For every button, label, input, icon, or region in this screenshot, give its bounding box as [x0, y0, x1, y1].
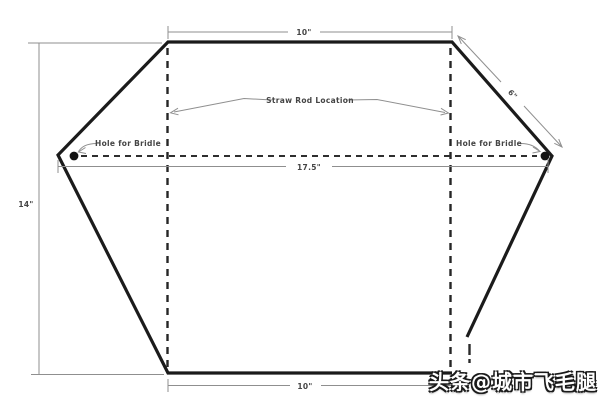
hole-for-bridle-left-label: Hole for Bridle — [95, 139, 161, 148]
hole-for-bridle-right-annotation: Hole for Bridle — [456, 139, 540, 153]
middle-width-label: 17.5" — [297, 163, 321, 172]
kite-outline — [58, 42, 552, 373]
edge-length-label: 6" — [506, 88, 519, 101]
top-width-label: 10" — [296, 28, 311, 37]
diagram-svg: 10" 6" 17.5" 14" — [0, 0, 600, 400]
straw-rod-label: Straw Rod Location — [266, 96, 354, 105]
bridle-hole-right-dot — [541, 152, 550, 161]
middle-width-dimension: 17.5" — [58, 160, 548, 173]
bottom-width-dimension: 10" — [168, 379, 452, 392]
straw-rod-annotation: Straw Rod Location — [171, 96, 449, 115]
hole-for-bridle-right-label: Hole for Bridle — [456, 139, 522, 148]
bridle-hole-left-dot — [70, 152, 79, 161]
watermark-text: 头条@城市飞毛腿 — [429, 366, 597, 395]
kite-plan-diagram: 10" 6" 17.5" 14" — [0, 0, 600, 400]
edge-dimension: 6" — [458, 36, 562, 147]
top-width-dimension: 10" — [168, 26, 452, 39]
bottom-width-label: 10" — [297, 382, 312, 391]
height-label: 14" — [18, 200, 33, 209]
hole-for-bridle-left-annotation: Hole for Bridle — [79, 139, 161, 154]
